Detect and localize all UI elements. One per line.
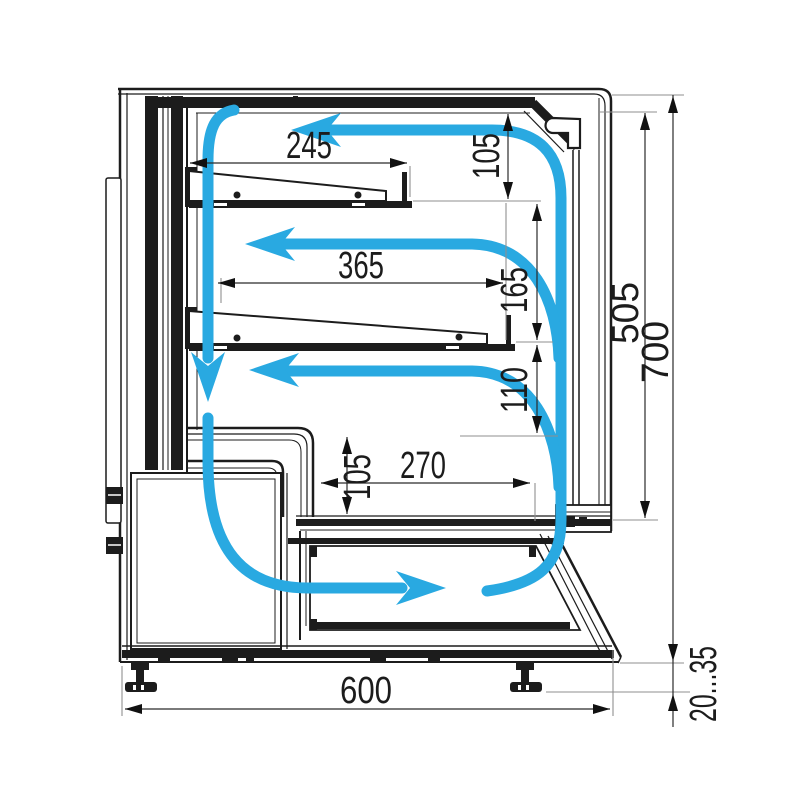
dim-label-270: 270 xyxy=(400,445,446,487)
airflow-diagram: 245 105 365 165 110 105 270 505 700 20..… xyxy=(0,0,800,800)
dim-label-365: 365 xyxy=(338,245,384,287)
dim-label-20-35: 20...35 xyxy=(683,646,725,722)
rear-panel-cover xyxy=(106,178,121,523)
dim-label-700: 700 xyxy=(635,321,677,383)
technical-drawing-page: 245 105 365 165 110 105 270 505 700 20..… xyxy=(0,0,800,800)
dim-label-600: 600 xyxy=(340,670,392,712)
dim-label-245: 245 xyxy=(286,125,332,167)
dim-label-165: 165 xyxy=(494,267,536,313)
shelf-upper-lip xyxy=(402,172,407,203)
dim-label-110: 110 xyxy=(494,367,536,413)
dim-label-105-top: 105 xyxy=(466,133,508,179)
dim-label-105-bottom: 105 xyxy=(337,454,379,500)
shelf-lower-lip xyxy=(506,315,511,346)
